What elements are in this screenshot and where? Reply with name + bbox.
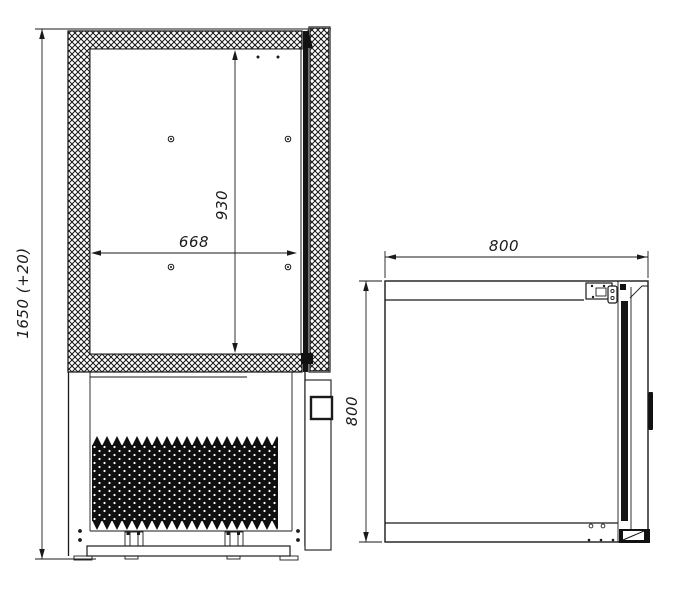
interior-liner (90, 49, 301, 354)
dim-label-interior-height: 930 (213, 190, 231, 220)
plan-view: 800 800 (343, 237, 653, 543)
dim-arrow-down (39, 549, 45, 559)
plan-outline (385, 281, 648, 542)
dim-label-overall-height: 1650 (+20) (14, 247, 32, 338)
insulated-door (301, 27, 330, 372)
dimension-overall-depth: 800 (343, 281, 382, 542)
dim-label-overall-depth: 800 (343, 396, 361, 426)
door-inner-face (303, 31, 308, 372)
door-gasket-band (621, 301, 628, 521)
gasket-top-cap (620, 284, 626, 290)
dim-label-interior-width: 668 (179, 233, 209, 251)
dim-arrow-up (39, 29, 45, 39)
control-box (311, 397, 332, 419)
condenser-coil (92, 436, 278, 530)
door-bottom-hinge (301, 353, 313, 364)
condenser-fins-bottom (92, 520, 278, 530)
condenser-fins-top (92, 436, 278, 446)
dim-label-overall-width: 800 (489, 237, 519, 255)
base-rail (87, 546, 290, 556)
condenser-body (92, 445, 278, 521)
door-insulation (310, 28, 328, 370)
mounting-bracket-right (225, 532, 243, 546)
bottom-hinge-bracket (619, 529, 650, 543)
dim-arrow-up (363, 281, 369, 291)
mounting-bracket-left (125, 532, 143, 546)
machine-compartment (69, 372, 333, 560)
drawing-svg: 930 668 1650 (+20) (0, 0, 690, 593)
hinge-pin (608, 286, 617, 303)
dim-arrow-right (637, 254, 647, 259)
dimension-overall-width: 800 (385, 237, 648, 278)
front-section-view: 930 668 1650 (+20) (14, 27, 332, 560)
dim-arrow-left (386, 254, 396, 259)
technical-drawing-page: 930 668 1650 (+20) (0, 0, 690, 593)
dim-arrow-down (363, 532, 369, 542)
door-handle (649, 392, 654, 430)
